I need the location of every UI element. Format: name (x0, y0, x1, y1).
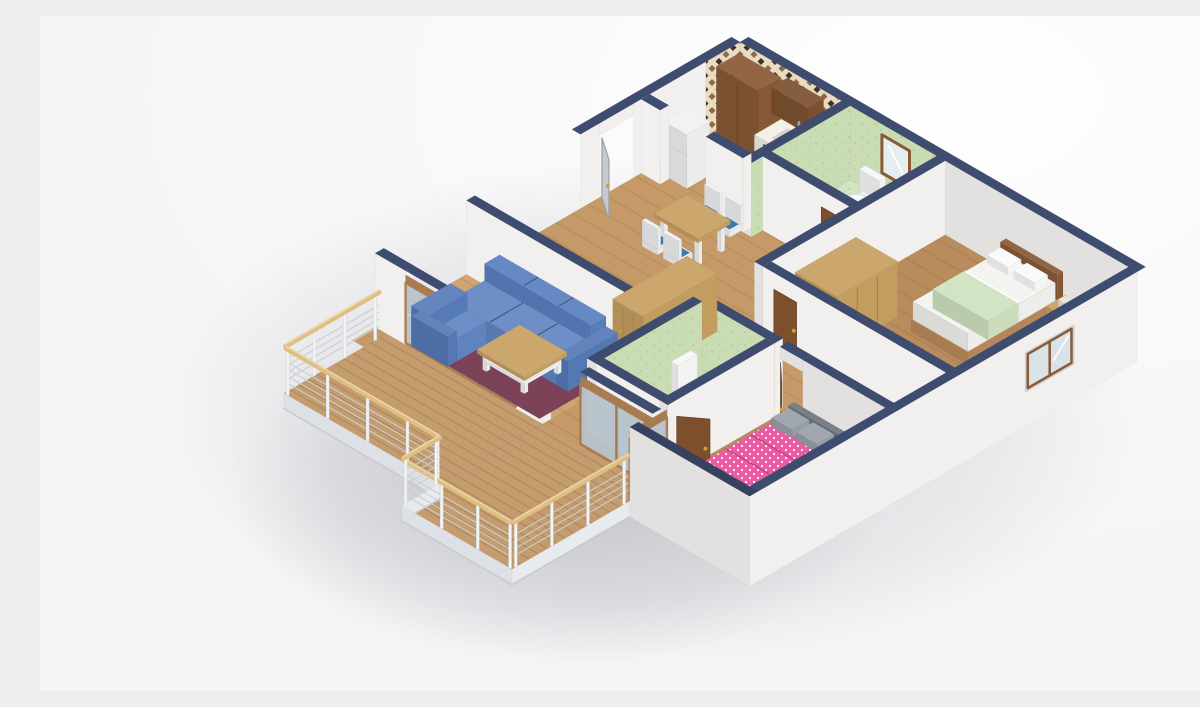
railing-post (587, 481, 590, 525)
railing-post (313, 332, 316, 376)
floorplan-3d-render (40, 16, 1200, 691)
railing-post (440, 485, 443, 529)
railing-post (374, 296, 377, 340)
railing-post (326, 375, 329, 419)
railing-post (551, 502, 554, 546)
railing-post (404, 459, 407, 503)
refrigerator (664, 108, 710, 188)
railing-post (476, 505, 479, 549)
railing-post (366, 398, 369, 442)
railing-post (435, 442, 438, 486)
door-handle (792, 329, 796, 333)
door-handle (606, 184, 610, 188)
railing-post (509, 524, 512, 568)
floorplan-canvas (40, 16, 1200, 691)
railing-post (343, 314, 346, 358)
railing-post (286, 351, 289, 395)
railing-post (623, 460, 626, 504)
door-handle (703, 447, 707, 451)
railing-post (514, 523, 517, 567)
